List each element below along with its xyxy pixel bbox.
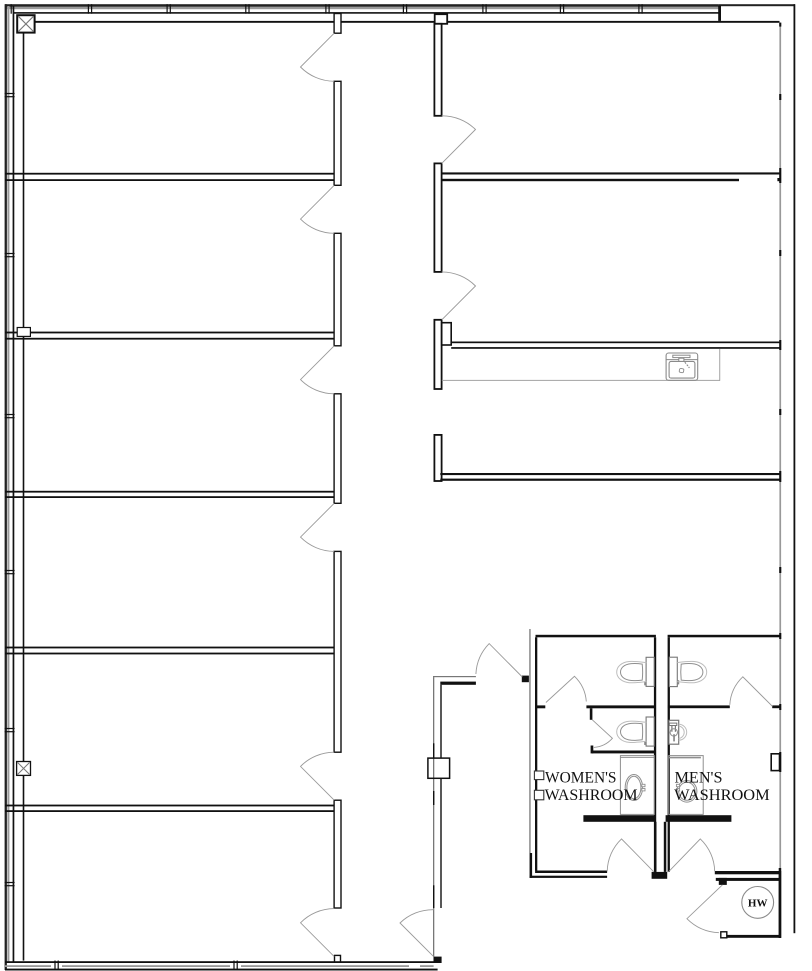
svg-text:WASHROOM: WASHROOM <box>674 787 770 804</box>
svg-text:HW: HW <box>748 897 768 909</box>
svg-text:WASHROOM: WASHROOM <box>545 787 638 804</box>
svg-text:MEN'S: MEN'S <box>675 770 723 787</box>
svg-text:WOMEN'S: WOMEN'S <box>545 770 617 787</box>
